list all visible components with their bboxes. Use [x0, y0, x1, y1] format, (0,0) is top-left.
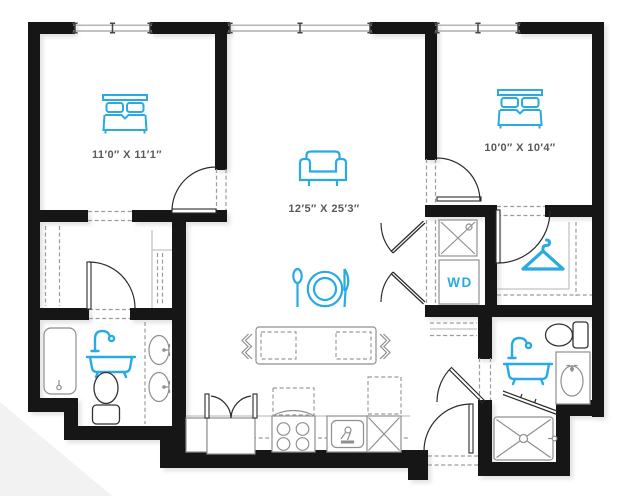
bathtub-icon	[87, 331, 135, 377]
window-bedroom-2	[434, 23, 520, 32]
laundry-closet: WD	[439, 220, 479, 304]
bathroom-1-door	[87, 262, 135, 309]
refrigerator	[205, 394, 257, 454]
laundry-closet-double-doors	[381, 221, 425, 304]
living-dimensions-label: 12′5″ X 25′3″	[288, 203, 359, 215]
floor-plan-page: WD	[0, 0, 639, 496]
hanger-icon	[523, 240, 563, 269]
double-vanity-sinks	[149, 336, 170, 402]
range	[272, 388, 315, 452]
shower-tub-stall	[44, 328, 76, 394]
walk-in-shower	[494, 417, 557, 460]
floor-plan-drawing: WD	[0, 0, 639, 496]
entry-door	[424, 404, 473, 453]
pantry	[368, 377, 401, 414]
bedroom-1-dimensions-label: 11′0″ X 11′1″	[92, 149, 162, 161]
washer-dryer-label: WD	[447, 275, 473, 290]
kitchen	[186, 327, 410, 454]
dining-place-setting-icon	[293, 269, 348, 307]
bedroom-1-door	[172, 167, 216, 213]
kitchen-island	[242, 327, 390, 364]
living-area	[293, 152, 348, 308]
bathroom-2	[494, 322, 590, 460]
sofa-icon	[300, 152, 346, 187]
base-cabinet	[186, 418, 207, 452]
shower-door	[503, 391, 557, 415]
bathroom-2-door	[437, 367, 485, 404]
vanity-sink-2	[556, 352, 590, 404]
walk-in-closet-door	[496, 210, 550, 263]
toilet-1	[93, 373, 120, 425]
bedroom-2-door	[437, 158, 481, 201]
bedroom-1: 11′0″ X 11′1″	[92, 95, 162, 161]
bed-icon-1	[103, 95, 147, 134]
island-seat-left	[242, 334, 252, 359]
bathtub-icon-2	[504, 338, 552, 384]
walk-in-closet	[523, 240, 563, 269]
island-seat-right	[380, 334, 390, 359]
bedroom-2: 10′0″ X 10′4″	[484, 90, 555, 154]
kitchen-sink	[327, 416, 368, 452]
washer-dryer-stack: WD	[439, 260, 479, 304]
washer	[439, 220, 477, 256]
window-bedroom-1	[72, 23, 152, 32]
dishwasher	[367, 416, 401, 452]
bed-icon-2	[498, 90, 542, 129]
windows	[72, 23, 520, 32]
toilet-2	[546, 322, 589, 348]
window-living	[227, 23, 372, 32]
bedroom-2-dimensions-label: 10′0″ X 10′4″	[484, 142, 555, 154]
